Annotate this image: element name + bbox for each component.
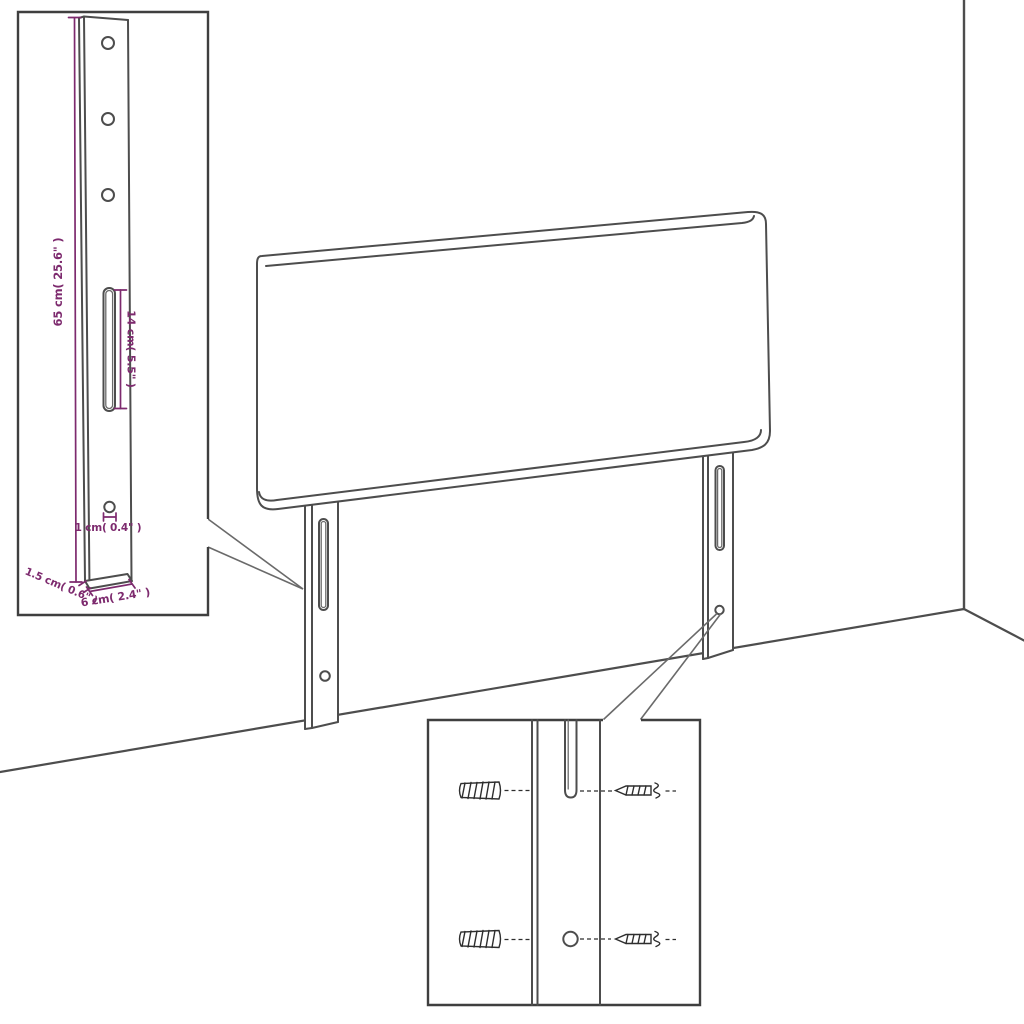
mounting-detail-inset: [428, 720, 700, 1005]
headboard-outline: [257, 212, 770, 510]
right-callout-line-2: [641, 614, 722, 720]
dimension-slot-length-label: 14 cm( 5.5" ): [125, 310, 138, 388]
callout-lines: [208, 519, 721, 720]
dimension-total-height-label: 65 cm( 25.6" ): [51, 238, 65, 327]
leg-detail-inset: 65 cm( 25.6" ) 14 cm( 5.5" ) 1 cm( 0.4" …: [18, 12, 208, 615]
assembly-diagram: 65 cm( 25.6" ) 14 cm( 5.5" ) 1 cm( 0.4" …: [0, 0, 1024, 1024]
headboard-panel: [257, 212, 770, 510]
dimension-hole-diameter-label: 1 cm( 0.4" ): [75, 522, 142, 534]
floor-line-right: [964, 609, 1024, 641]
